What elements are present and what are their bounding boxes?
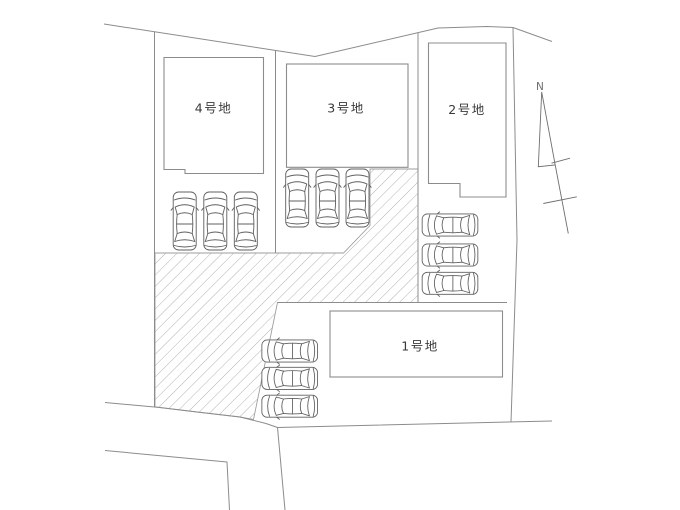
lot-2-building bbox=[429, 43, 507, 197]
car-icon bbox=[284, 169, 311, 227]
lot-4-label: 4号地 bbox=[195, 101, 232, 116]
car-icon bbox=[262, 338, 318, 364]
north-arrow: N bbox=[536, 81, 577, 234]
boundary-right bbox=[511, 28, 517, 423]
lot-3-building bbox=[287, 64, 409, 167]
car-icon bbox=[232, 192, 259, 250]
car-icon bbox=[344, 169, 371, 227]
car-icon bbox=[202, 192, 229, 250]
site-plan: 4号地 3号地 2号地 1号地 N bbox=[0, 0, 680, 510]
lot-2-label: 2号地 bbox=[448, 102, 485, 117]
car-icon bbox=[171, 192, 198, 250]
lot-4-building bbox=[164, 58, 264, 174]
car-icon bbox=[422, 242, 478, 268]
north-arrow-needle-head bbox=[538, 92, 555, 167]
north-arrow-tick-2 bbox=[543, 197, 577, 204]
road-edge-lower-left bbox=[105, 451, 230, 510]
car-icon bbox=[262, 365, 318, 391]
site-plan-svg: 4号地 3号地 2号地 1号地 N bbox=[0, 0, 680, 510]
car-icon bbox=[314, 169, 341, 227]
car-icon bbox=[422, 270, 478, 296]
lot-1-label: 1号地 bbox=[401, 339, 438, 354]
car-icon bbox=[262, 393, 318, 419]
road-edge-vertical bbox=[278, 428, 286, 510]
north-label: N bbox=[536, 81, 544, 93]
lot-3-label: 3号地 bbox=[327, 101, 364, 116]
car-icon bbox=[422, 212, 478, 238]
